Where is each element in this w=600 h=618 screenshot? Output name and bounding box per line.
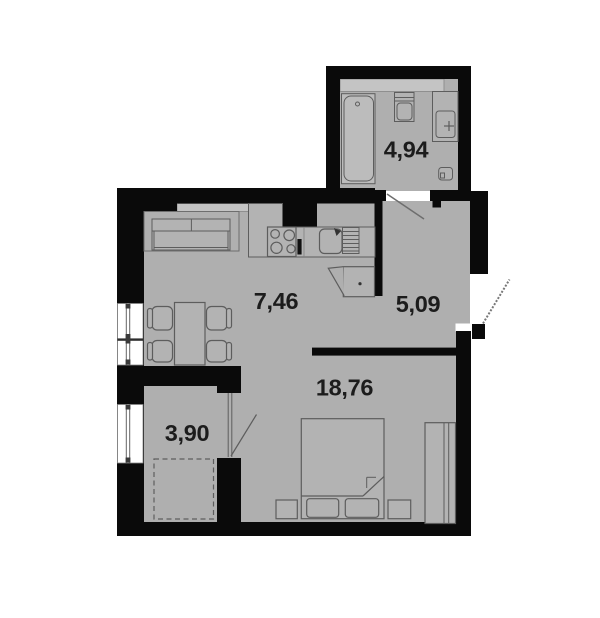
svg-text:4,94: 4,94 [384,137,429,163]
svg-text:5,09: 5,09 [396,291,441,317]
svg-text:3,90: 3,90 [165,420,210,446]
svg-text:18,76: 18,76 [316,375,374,401]
svg-text:7,46: 7,46 [254,288,299,314]
